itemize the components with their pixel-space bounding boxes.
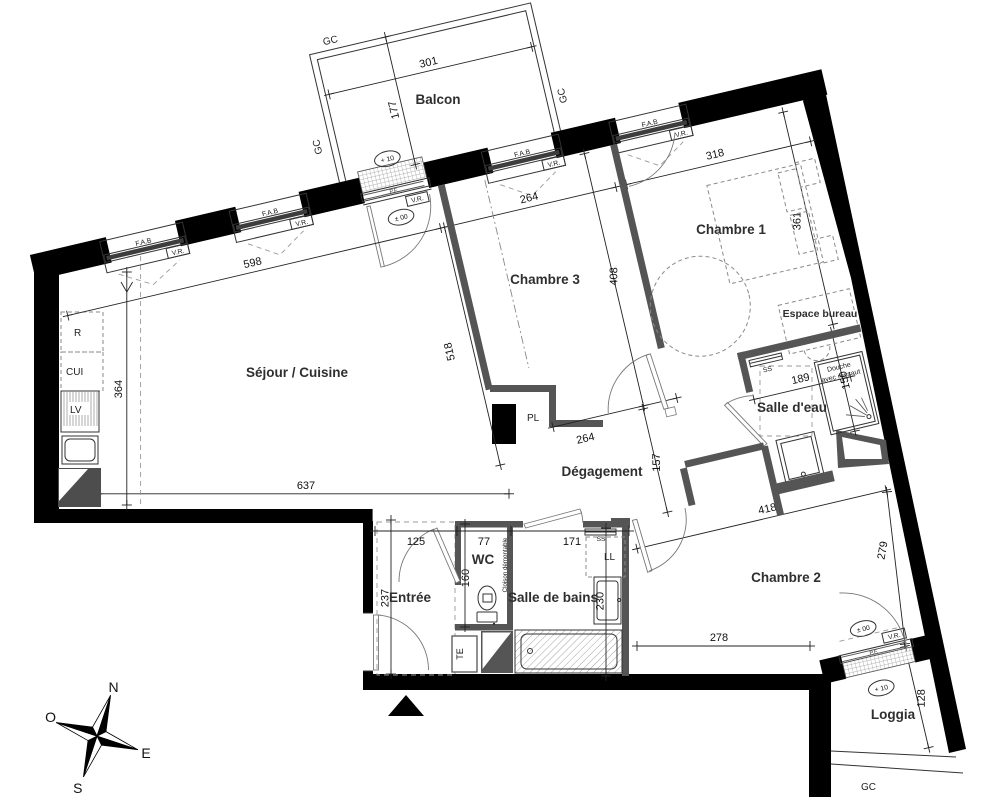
svg-text:125: 125 xyxy=(407,536,425,548)
svg-text:N: N xyxy=(109,679,119,695)
svg-text:GC: GC xyxy=(861,782,876,793)
svg-text:128: 128 xyxy=(916,689,928,707)
svg-text:Balcon: Balcon xyxy=(415,92,460,107)
svg-text:Cloison démontable: Cloison démontable xyxy=(502,537,509,592)
svg-text:LV: LV xyxy=(70,405,82,416)
svg-text:278: 278 xyxy=(710,632,728,644)
svg-text:Salle d'eau: Salle d'eau xyxy=(757,400,827,415)
svg-text:Chambre 2: Chambre 2 xyxy=(751,570,821,585)
svg-text:R: R xyxy=(74,328,81,339)
svg-text:PL: PL xyxy=(527,413,540,424)
svg-text:77: 77 xyxy=(478,536,490,548)
svg-text:Loggia: Loggia xyxy=(871,707,916,722)
svg-text:Entrée: Entrée xyxy=(389,590,432,605)
svg-text:Séjour / Cuisine: Séjour / Cuisine xyxy=(246,365,349,380)
svg-text:Chambre 1: Chambre 1 xyxy=(696,222,766,237)
svg-text:O: O xyxy=(45,709,56,725)
svg-text:CUI: CUI xyxy=(66,367,83,378)
svg-text:Chambre 3: Chambre 3 xyxy=(510,272,580,287)
svg-text:171: 171 xyxy=(563,536,581,548)
svg-text:WC: WC xyxy=(472,552,495,567)
svg-text:Espace bureau: Espace bureau xyxy=(783,308,858,320)
svg-text:E: E xyxy=(141,745,150,761)
svg-text:Salle de bains: Salle de bains xyxy=(508,590,598,605)
svg-text:157: 157 xyxy=(651,453,663,471)
svg-text:160: 160 xyxy=(460,569,472,587)
svg-text:Dégagement: Dégagement xyxy=(561,464,643,479)
svg-text:637: 637 xyxy=(297,480,315,492)
svg-text:S: S xyxy=(73,780,82,796)
svg-text:364: 364 xyxy=(113,380,125,398)
svg-text:408: 408 xyxy=(608,267,620,285)
svg-text:TE: TE xyxy=(455,648,465,660)
